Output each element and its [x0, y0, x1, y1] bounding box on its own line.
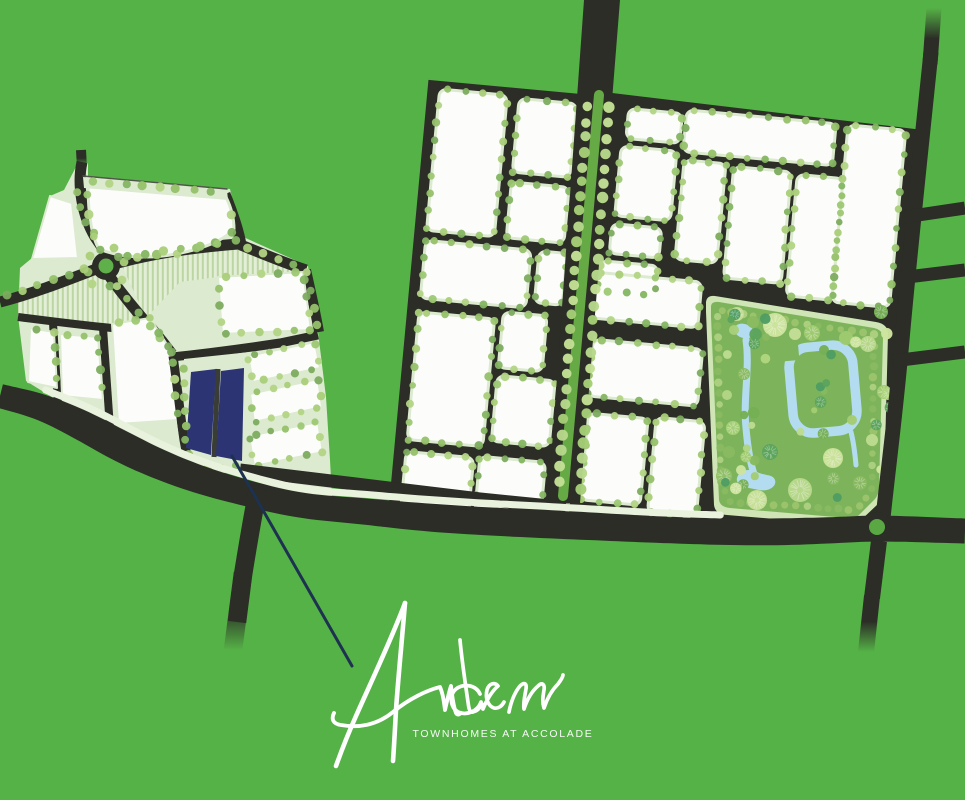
svg-text:TOWNHOMES AT ACCOLADE: TOWNHOMES AT ACCOLADE: [413, 728, 594, 740]
